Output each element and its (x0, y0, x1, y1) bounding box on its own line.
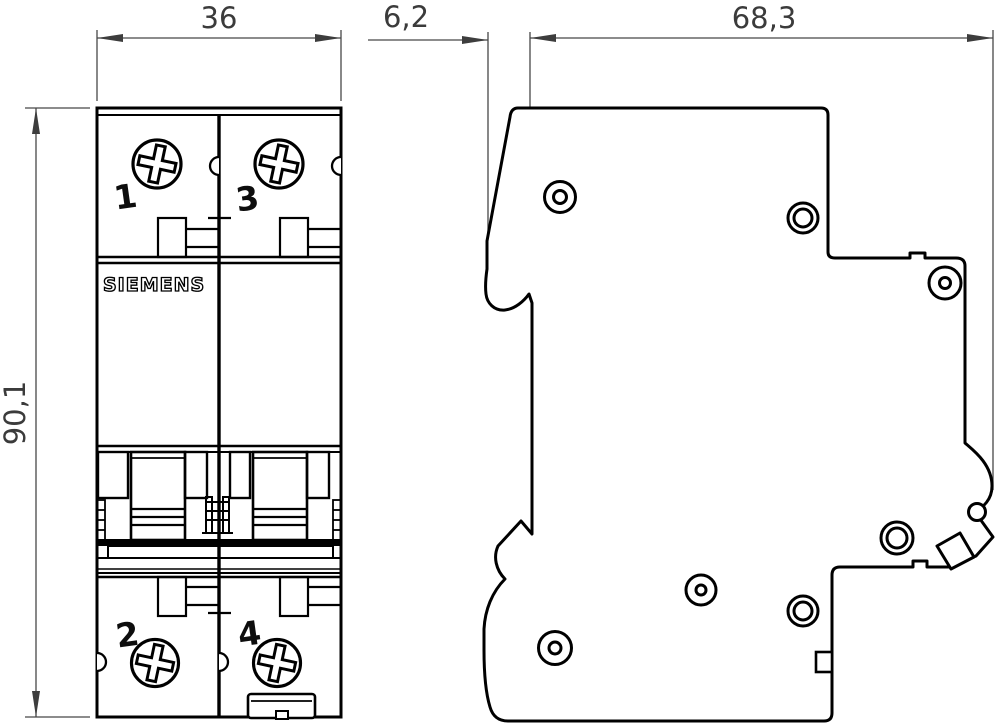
front-view: 1 3 2 4 SIEMENS (97, 108, 341, 719)
latch-pivot (969, 504, 986, 521)
side-depth-label: 68,3 (732, 1, 797, 35)
arrow-left-icon (530, 34, 556, 42)
screw-terminal-3 (255, 140, 303, 188)
arrow-down-icon (32, 691, 40, 717)
side-tab (816, 652, 832, 672)
technical-drawing-page: 36 90,1 6,2 68,3 (0, 0, 999, 728)
arrow-right-icon (967, 34, 993, 42)
arrow-right-icon (315, 34, 341, 42)
arrow-right-icon (462, 36, 488, 44)
arrow-left-icon (97, 34, 123, 42)
side-view (484, 108, 993, 721)
brand-label: SIEMENS (103, 274, 205, 296)
arrow-up-icon (32, 108, 40, 134)
handle-bar (97, 539, 341, 546)
bottom-tab (248, 694, 315, 719)
front-width-label: 36 (201, 1, 238, 35)
front-height-label: 90,1 (0, 381, 32, 446)
side-offset-label: 6,2 (383, 0, 429, 34)
screw-terminal-1 (133, 140, 181, 188)
technical-drawing-canvas: 36 90,1 6,2 68,3 (0, 0, 999, 728)
